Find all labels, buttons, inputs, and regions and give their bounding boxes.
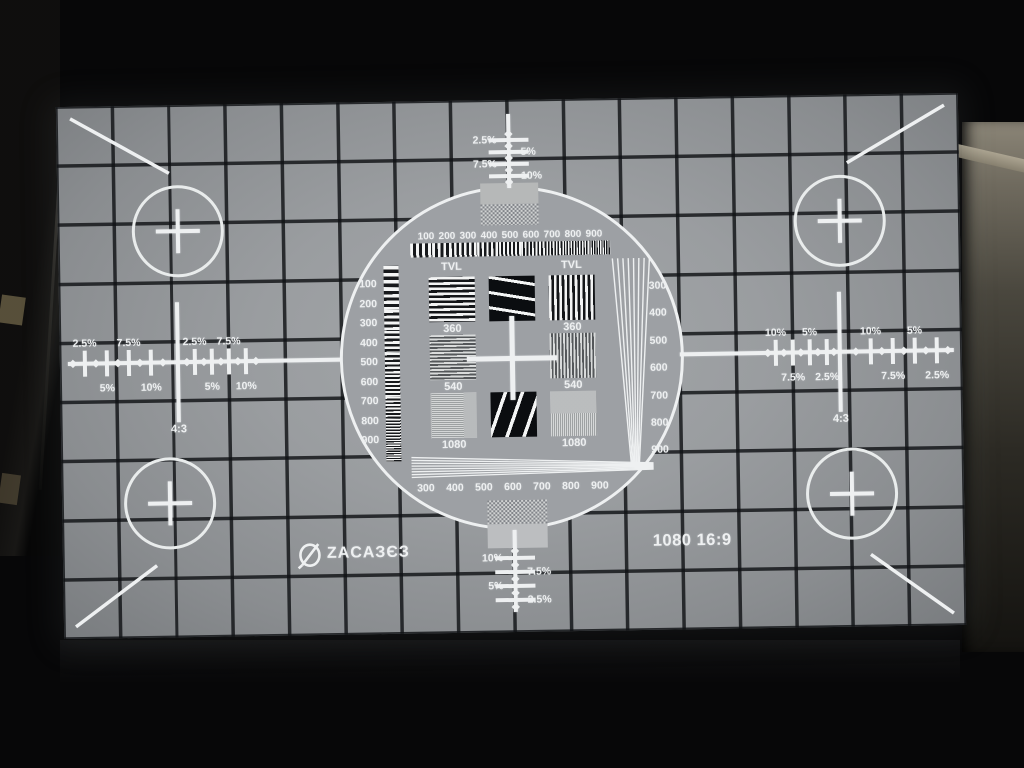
left-wedge-segment (385, 397, 400, 419)
right-ruler-label-above: 5% (907, 325, 922, 337)
left-wedge-number: 500 (346, 356, 378, 369)
left-ruler-label-below: 5% (100, 382, 115, 394)
left-ruler-label-above: 2.5% (73, 338, 97, 350)
top-wedge-segment (454, 243, 476, 257)
top-wedge-segment (588, 240, 610, 254)
label-540-left: 540 (444, 381, 463, 393)
left-ruler-tick (149, 350, 153, 376)
zacabeb-logo-text: ZACAЗЄЗ (327, 544, 410, 563)
top-scale-label: 7.5% (455, 158, 497, 171)
bottom-scale-label: 10% (461, 552, 503, 565)
left-ruler-label-above: 7.5% (117, 337, 141, 349)
right-ruler-label-above: 10% (860, 325, 881, 337)
room-photo: TVL TVL 360 360 540 540 1080 1080 4:3 4:… (0, 0, 1024, 768)
right-ruler-tick (791, 340, 795, 366)
top-wedge-segment (499, 242, 521, 256)
left-ruler-label-below: 10% (236, 380, 257, 392)
bottom-resolution-fan (409, 452, 655, 482)
right-wedge-number: 500 (650, 334, 668, 346)
bottom-wedge-number: 900 (585, 479, 615, 491)
left-ruler-tick (105, 350, 109, 376)
left-ruler-tick (227, 348, 231, 374)
screen-light-spill (60, 640, 960, 684)
bottom-wedge-number: 500 (469, 481, 499, 493)
tvl-square-1080-horizontal (430, 393, 477, 439)
door-hinge-highlight-top (0, 294, 26, 325)
left-ruler-tick (193, 349, 197, 375)
top-wedge-segment (543, 241, 565, 255)
right-ruler-tick (869, 338, 873, 364)
label-360-right: 360 (563, 321, 582, 333)
left-wedge-segment (386, 418, 401, 440)
label-1080-right: 1080 (562, 437, 587, 449)
bottom-wedge-number: 600 (498, 481, 528, 493)
right-ruler-label-above: 5% (802, 326, 817, 338)
right-ruler-tick (891, 338, 895, 364)
corner-diagonal-line (75, 566, 158, 627)
top-wedge-segment (432, 243, 454, 257)
top-scale-label: 10% (521, 169, 542, 181)
left-ruler-tick (127, 350, 131, 376)
bottom-wedge-number: 800 (556, 480, 586, 492)
left-wedge-segment (384, 331, 399, 353)
top-scale-label: 2.5% (454, 134, 496, 147)
corner-cross-top-left-v (175, 209, 180, 253)
right-ruler-tick (913, 338, 917, 364)
right-ruler-label-below: 7.5% (881, 370, 905, 382)
top-wedge-segment (477, 242, 499, 256)
bottom-scale-label: 2.5% (528, 593, 552, 605)
tvl-label-left: TVL (441, 261, 462, 273)
left-ruler-label-above: 2.5% (183, 336, 207, 348)
tvl-square-360-horizontal (429, 277, 476, 323)
corner-cross-bottom-left-v (168, 481, 173, 525)
tvl-square-1080-vertical (550, 391, 597, 437)
right-wedge-number: 800 (651, 417, 669, 429)
corner-diagonal-line (871, 553, 954, 614)
tvl-label-right: TVL (561, 259, 582, 271)
left-ruler-label-below: 5% (205, 381, 220, 393)
left-wedge-number: 600 (346, 376, 378, 389)
top-wedge-segment (521, 241, 543, 255)
left-ruler-tick (210, 349, 214, 375)
left-wedge-segment (386, 440, 401, 462)
top-wedge-segment (410, 243, 432, 257)
right-ruler-label-above: 10% (765, 327, 786, 339)
right-ruler-tick (935, 337, 939, 363)
left-wedge-number: 300 (345, 317, 377, 330)
left-ruler-label-below: 10% (141, 381, 162, 393)
tvl-square-360-vertical (549, 275, 596, 321)
top-calibration-block (480, 183, 539, 226)
corner-cross-bottom-right-v (850, 472, 855, 516)
bottom-wedge-number: 300 (411, 482, 441, 494)
zacabeb-logo: ZACAЗЄЗ (297, 540, 417, 570)
top-scale-label: 5% (521, 146, 536, 158)
right-ruler-tick (774, 340, 778, 366)
left-wedge-number: 800 (347, 415, 379, 428)
left-wedge-number: 200 (345, 298, 377, 311)
left-wedge-segment (385, 353, 400, 375)
left-wedge-number: 700 (346, 395, 378, 408)
left-resolution-wedge-bar (383, 266, 401, 462)
right-wedge-number: 700 (650, 389, 668, 401)
left-wedge-number: 900 (347, 434, 379, 447)
left-wedge-segment (385, 375, 400, 397)
right-wall (962, 122, 1024, 652)
right-ruler-label-below: 2.5% (925, 369, 949, 381)
right-wedge-number: 600 (650, 362, 668, 374)
bottom-scale-label: 5% (461, 580, 503, 593)
top-block-checker (480, 204, 538, 226)
corner-cross-top-right-v (837, 199, 842, 243)
left-ruler-tick (83, 351, 87, 377)
left-wedge-segment (384, 288, 399, 310)
label-1080-left: 1080 (442, 439, 467, 451)
bottom-block-checker (487, 499, 547, 524)
label-540-right: 540 (564, 379, 583, 391)
format-label: 1080 16:9 (653, 534, 732, 547)
right-ruler-tick (825, 339, 829, 365)
right-ruler-label-below: 7.5% (781, 371, 805, 383)
bottom-calibration-block (487, 499, 548, 548)
bottom-wedge-number: 400 (440, 482, 470, 494)
corner-diagonal-line (846, 105, 945, 163)
left-wedge-number: 100 (345, 278, 377, 291)
right-wedge-number: 300 (649, 280, 667, 292)
left-wedge-number: 400 (346, 337, 378, 350)
top-wedge-number: 900 (579, 228, 609, 240)
bottom-scale-label: 7.5% (527, 565, 551, 577)
left-ruler-label-above: 7.5% (217, 335, 241, 347)
tvl-square-diagonal-shallow (489, 276, 536, 322)
aspect-label-left: 4:3 (171, 423, 187, 435)
left-wedge-segment (384, 309, 399, 331)
right-wedge-number: 400 (649, 307, 667, 319)
label-360-left: 360 (443, 323, 462, 335)
left-wedge-segment (383, 266, 398, 288)
projection-screen: TVL TVL 360 360 540 540 1080 1080 4:3 4:… (56, 93, 966, 639)
corner-diagonal-line (70, 117, 169, 175)
bottom-block-solid (487, 523, 547, 548)
zacabeb-logo-icon (297, 541, 324, 569)
left-ruler-tick (244, 348, 248, 374)
top-wedge-segment (565, 241, 587, 255)
right-ruler-label-below: 2.5% (815, 371, 839, 383)
right-wedge-number: 900 (651, 444, 669, 456)
bottom-wedge-number: 700 (527, 480, 557, 492)
right-ruler-tick (808, 339, 812, 365)
aspect-label-right: 4:3 (833, 413, 849, 425)
